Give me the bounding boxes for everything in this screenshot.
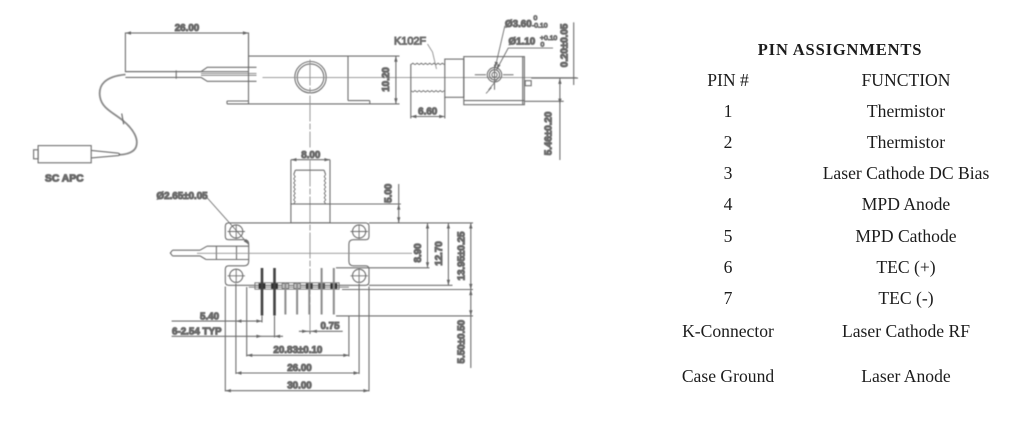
svg-text:6.60: 6.60 [418, 107, 438, 118]
svg-text:13.95±0.25: 13.95±0.25 [457, 231, 468, 281]
svg-text:5.40: 5.40 [200, 311, 220, 322]
svg-text:0.20±0.05: 0.20±0.05 [560, 23, 571, 67]
svg-text:0.75: 0.75 [321, 321, 341, 332]
svg-text:5.00: 5.00 [384, 183, 395, 203]
svg-text:8.90: 8.90 [413, 243, 424, 263]
svg-text:26.00: 26.00 [175, 23, 200, 34]
svg-text:5.50±0.50: 5.50±0.50 [457, 319, 468, 363]
svg-text:Ø3.60: Ø3.60 [505, 19, 532, 30]
svg-text:SC APC: SC APC [45, 174, 84, 185]
svg-text:Ø1.10: Ø1.10 [509, 37, 536, 48]
svg-text:K102F: K102F [394, 36, 426, 48]
svg-text:5.46±0.20: 5.46±0.20 [544, 111, 555, 155]
svg-text:0: 0 [541, 42, 545, 49]
svg-text:30.00: 30.00 [287, 381, 312, 392]
svg-text:20.83±0.10: 20.83±0.10 [273, 345, 323, 356]
svg-text:0: 0 [534, 15, 538, 22]
svg-text:Ø2.65±0.05: Ø2.65±0.05 [157, 191, 209, 202]
svg-text:6-2.54 TYP: 6-2.54 TYP [172, 327, 222, 338]
svg-text:-0.10: -0.10 [532, 23, 548, 30]
svg-text:12.70: 12.70 [434, 241, 445, 266]
svg-text:26.00: 26.00 [287, 363, 312, 374]
svg-text:8.00: 8.00 [301, 150, 321, 161]
svg-text:10.20: 10.20 [381, 67, 392, 92]
